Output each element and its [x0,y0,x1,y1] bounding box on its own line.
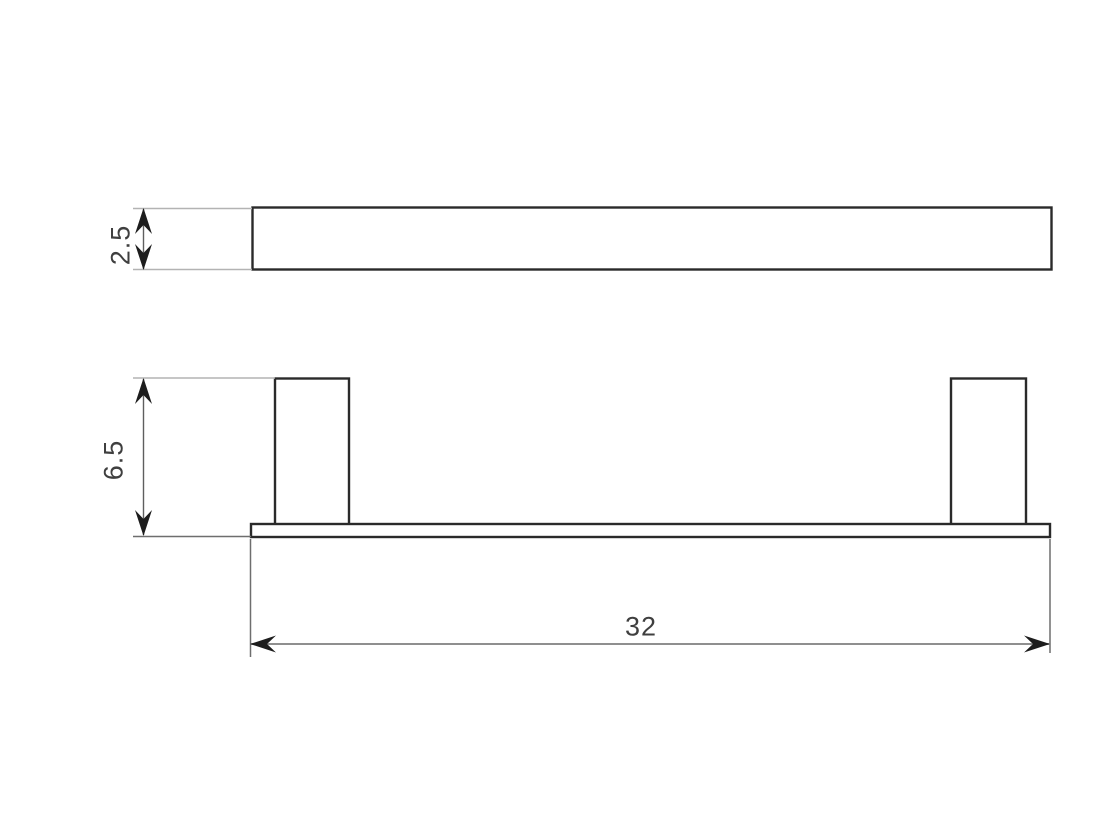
front-view [251,379,1050,538]
length-dimension: 32 [250,539,1050,657]
length-dimension-label: 32 [625,611,657,641]
right-post-rect [951,379,1026,525]
dimension-drawing: 2.5 6.5 32 [0,0,1098,840]
height-dimension-label: 6.5 [98,440,128,481]
bar-profile-rect [253,208,1052,270]
left-post-rect [275,379,349,525]
thickness-dimension: 2.5 [105,208,252,270]
thickness-dimension-label: 2.5 [105,225,135,266]
height-dimension: 6.5 [98,378,275,537]
mounting-plate-rect [251,524,1050,537]
top-view [253,208,1052,270]
technical-drawing-canvas: 2.5 6.5 32 [0,0,1098,840]
